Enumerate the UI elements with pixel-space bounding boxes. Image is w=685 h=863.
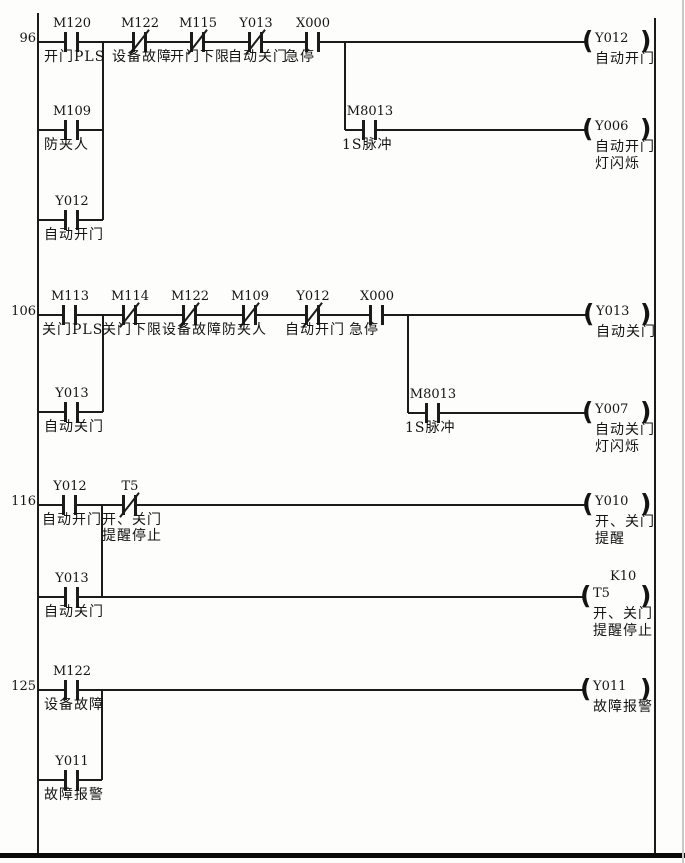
contact-name: M8013 — [330, 104, 410, 119]
contact-name: M109 — [32, 104, 112, 119]
coil-open-paren: ( — [580, 676, 591, 702]
ladder-diagram: 96M120开门PLSM122设备故障M115开门下限Y013自动关门X000急… — [0, 0, 685, 863]
contact-name: X000 — [337, 289, 417, 304]
coil-Y011: Y011 — [593, 679, 626, 694]
coil-open-paren: ( — [580, 583, 591, 609]
right-page-edge — [682, 0, 684, 863]
coil-label: 提醒 — [595, 528, 625, 548]
coil-Y006: Y006 — [595, 119, 628, 134]
contact-label: 防夹人 — [44, 134, 89, 154]
contact-label: 自动开门 — [285, 319, 345, 339]
coil-Y010: Y010 — [595, 494, 628, 509]
contact-label: 自动关门 — [44, 601, 104, 621]
contact-label: 自动关门 — [228, 46, 288, 66]
contact-label: 自动开门 — [42, 509, 102, 529]
contact-label: 自动开门 — [44, 224, 104, 244]
coil-open-paren: ( — [582, 399, 593, 425]
contact-name: Y013 — [32, 386, 112, 401]
contact-name: M122 — [32, 664, 112, 679]
rung-number-96: 96 — [6, 31, 36, 46]
rung-number-116: 116 — [6, 494, 36, 509]
contact-label: 1S脉冲 — [405, 417, 456, 437]
contact-label: 设备故障 — [162, 319, 222, 339]
coil-Y013: Y013 — [596, 304, 629, 319]
contact-label: 开门下限 — [170, 46, 230, 66]
coil-open-paren: ( — [582, 28, 593, 54]
contact-tick — [317, 32, 320, 52]
wire-h — [38, 596, 583, 598]
coil-open-paren: ( — [582, 116, 593, 142]
contact-label: 故障报警 — [44, 784, 104, 804]
coil-label: 故障报警 — [593, 696, 653, 716]
contact-label: 设备故障 — [112, 46, 172, 66]
contact-name: Y013 — [32, 571, 112, 586]
coil-k-constant: K10 — [610, 569, 636, 584]
wire-h — [345, 129, 585, 131]
contact-label: 开门PLS — [44, 46, 105, 66]
coil-open-paren: ( — [583, 301, 594, 327]
coil-T5: T5 — [593, 586, 610, 601]
coil-label: 灯闪烁 — [595, 153, 640, 173]
contact-label: 提醒停止 — [102, 525, 162, 545]
contact-name: T5 — [90, 479, 170, 494]
wire-h — [38, 504, 585, 506]
contact-label: 防夹人 — [222, 319, 267, 339]
wire-h — [38, 689, 583, 691]
contact-label: 急停 — [349, 319, 379, 339]
coil-label: 自动开门 — [595, 48, 655, 68]
coil-label: 灯闪烁 — [595, 436, 640, 456]
rung-number-125: 125 — [6, 679, 36, 694]
bottom-page-edge — [0, 853, 685, 858]
coil-label: 提醒停止 — [593, 620, 653, 640]
contact-label: 关门下限 — [102, 319, 162, 339]
contact-name: M8013 — [393, 387, 473, 402]
contact-label: 自动关门 — [44, 416, 104, 436]
coil-open-paren: ( — [582, 491, 593, 517]
contact-tick — [381, 305, 384, 325]
contact-name: X000 — [273, 16, 353, 31]
contact-label: 关门PLS — [42, 319, 103, 339]
contact-label: 1S脉冲 — [342, 134, 393, 154]
coil-Y007: Y007 — [595, 402, 628, 417]
coil-Y012: Y012 — [595, 31, 628, 46]
contact-name: Y012 — [32, 194, 112, 209]
rung-number-106: 106 — [6, 304, 36, 319]
coil-label: 自动关门 — [596, 321, 656, 341]
left-power-rail — [37, 13, 39, 855]
contact-name: Y011 — [32, 754, 112, 769]
contact-label: 急停 — [285, 46, 315, 66]
contact-label: 设备故障 — [44, 694, 104, 714]
